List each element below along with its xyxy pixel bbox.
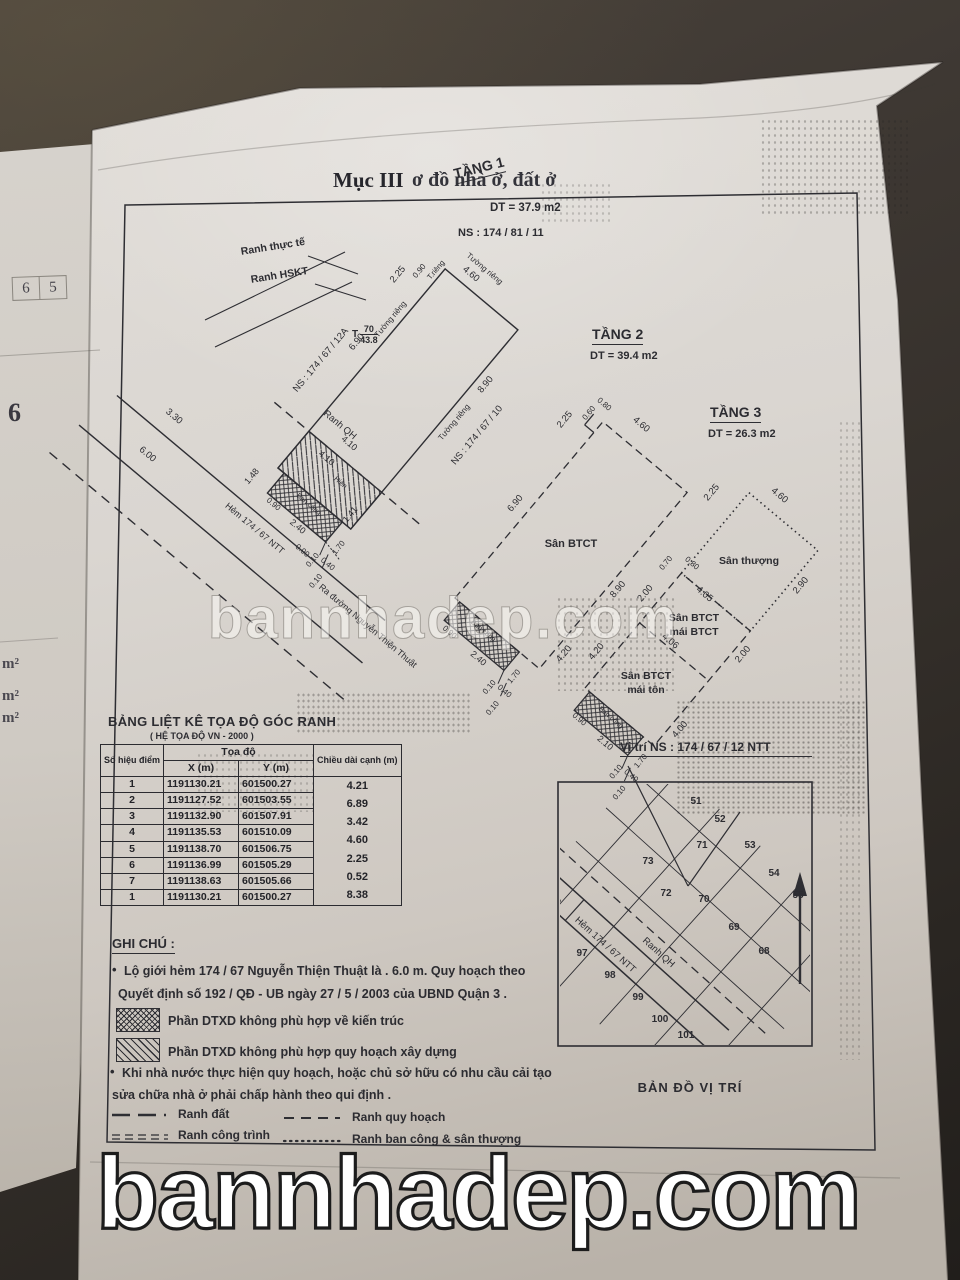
lot-73: 73 (638, 856, 658, 867)
cross-hatch-swatch (116, 1008, 160, 1032)
x-4: 1191138.70 (164, 841, 239, 857)
benchmark-bottom: 43.8 (360, 334, 378, 345)
benchmark-t: T (352, 329, 358, 340)
lot-70: 70 (694, 894, 714, 905)
photographed-floorplan-document: { "photo": { "watermark_mid": "bannhadep… (0, 0, 960, 1280)
y-3: 601510.09 (239, 825, 314, 841)
lot-100: 100 (648, 1014, 672, 1025)
note-line2a: Khi nhà nước thực hiện quy hoạch, hoặc c… (122, 1066, 552, 1080)
note-hatch-cross: Phần DTXD không phù hợp về kiến trúc (168, 1014, 404, 1028)
map-title: Vị trí NS : 174 / 67 / 12 NTT (620, 740, 812, 757)
x-3: 1191135.53 (164, 825, 239, 841)
benchmark-top: 70 (360, 324, 378, 334)
pt-4: 5 (101, 841, 164, 857)
x-5: 1191136.99 (164, 857, 239, 873)
lot-99: 99 (628, 992, 648, 1003)
lot-51: 51 (686, 796, 706, 807)
len-4: 2.25 (347, 852, 368, 867)
lot-55: 55 (788, 890, 808, 901)
pt-6: 7 (101, 873, 164, 889)
floor1-area: DT = 37.9 m2 (490, 202, 561, 214)
col-length: Chiều dài cạnh (m) (314, 745, 402, 777)
pt-0: 1 (101, 777, 164, 793)
lot-98: 98 (600, 970, 620, 981)
pt-1: 2 (101, 793, 164, 809)
map-caption: BẢN ĐỒ VỊ TRÍ (600, 1080, 780, 1095)
y-6: 601505.66 (239, 873, 314, 889)
legend-ranh-quy-hoach: Ranh quy hoạch (352, 1110, 445, 1124)
floor2-area: DT = 39.4 m2 (590, 350, 658, 362)
note-hatch-diag: Phần DTXD không phù hợp quy hoạch xây dự… (168, 1045, 457, 1059)
lot-71: 71 (692, 840, 712, 851)
x-0: 1191130.21 (164, 777, 239, 793)
section-heading: Mục III (333, 168, 404, 193)
table-row: 1 1191130.21 601500.27 4.21 6.89 3.42 4.… (101, 777, 402, 793)
len-1: 6.89 (347, 797, 368, 812)
floor2-san-btct: Sân BTCT (531, 538, 611, 550)
floor1-ns: NS : 174 / 81 / 11 (458, 227, 544, 239)
x-2: 1191132.90 (164, 809, 239, 825)
col-y: Y (m) (239, 761, 314, 777)
len-5: 0.52 (347, 870, 368, 885)
floor3-area: DT = 26.3 m2 (708, 428, 776, 440)
note-line1b: Quyết định số 192 / QĐ - UB ngày 27 / 5 … (118, 987, 507, 1001)
x-1: 1191127.52 (164, 793, 239, 809)
lot-53: 53 (740, 840, 760, 851)
y-2: 601507.91 (239, 809, 314, 825)
y-1: 601503.55 (239, 793, 314, 809)
pt-5: 6 (101, 857, 164, 873)
pt-7: 1 (101, 889, 164, 905)
col-coord: Tọa độ (164, 745, 314, 761)
floor1-ranh-hskt: Ranh HSKT (250, 265, 309, 286)
x-6: 1191138.63 (164, 873, 239, 889)
floor3-mai-ton: mái tôn (606, 684, 686, 696)
note-line2b: sửa chữa nhà ở phải chấp hành theo qui đ… (112, 1088, 391, 1102)
len-6: 8.38 (347, 888, 368, 903)
pt-2: 3 (101, 809, 164, 825)
table-subtitle: ( HỆ TỌA ĐỘ VN - 2000 ) (150, 731, 254, 741)
y-4: 601506.75 (239, 841, 314, 857)
bullet-2: • (110, 1064, 115, 1079)
lot-72: 72 (656, 888, 676, 899)
note-line1a: Lộ giới hẻm 174 / 67 Nguyễn Thiện Thuật … (124, 964, 525, 978)
notes-heading: GHI CHÚ : (112, 936, 175, 954)
diag-hatch-swatch (116, 1038, 160, 1062)
lot-69: 69 (724, 922, 744, 933)
lot-68: 68 (754, 946, 774, 957)
lot-54: 54 (764, 868, 784, 879)
pt-3: 4 (101, 825, 164, 841)
len-3: 4.60 (347, 833, 368, 848)
col-point: Số hiệu điểm (101, 745, 164, 777)
floor2-title: TẦNG 2 (592, 326, 643, 345)
table-title: BẢNG LIỆT KÊ TỌA ĐỘ GÓC RANH (108, 714, 336, 729)
y-7: 601500.27 (239, 889, 314, 905)
floor1-ranh-thuc-te: Ranh thực tế (240, 236, 306, 258)
lot-101: 101 (674, 1030, 698, 1041)
floor3-san-btct-2: Sân BTCT (606, 670, 686, 682)
floor3-title: TẦNG 3 (710, 404, 761, 423)
legend-ranh-dat: Ranh đất (178, 1107, 229, 1121)
x-7: 1191130.21 (164, 889, 239, 905)
bullet-1: • (112, 962, 117, 977)
watermark-middle: bannhadep.com (208, 585, 679, 652)
lot-97: 97 (572, 948, 592, 959)
col-x: X (m) (164, 761, 239, 777)
coordinates-table: Số hiệu điểm Tọa độ Chiều dài cạnh (m) X… (100, 744, 402, 906)
watermark-bottom: bannhadep.com (96, 1134, 860, 1252)
y-0: 601500.27 (239, 777, 314, 793)
length-cell: 4.21 6.89 3.42 4.60 2.25 0.52 8.38 (314, 777, 402, 906)
len-2: 3.42 (347, 815, 368, 830)
floor3-san-thuong: Sân thượng (709, 555, 789, 567)
y-5: 601505.29 (239, 857, 314, 873)
lot-52: 52 (710, 814, 730, 825)
len-0: 4.21 (347, 779, 368, 794)
floor1-benchmark: T 70 43.8 (352, 324, 378, 345)
